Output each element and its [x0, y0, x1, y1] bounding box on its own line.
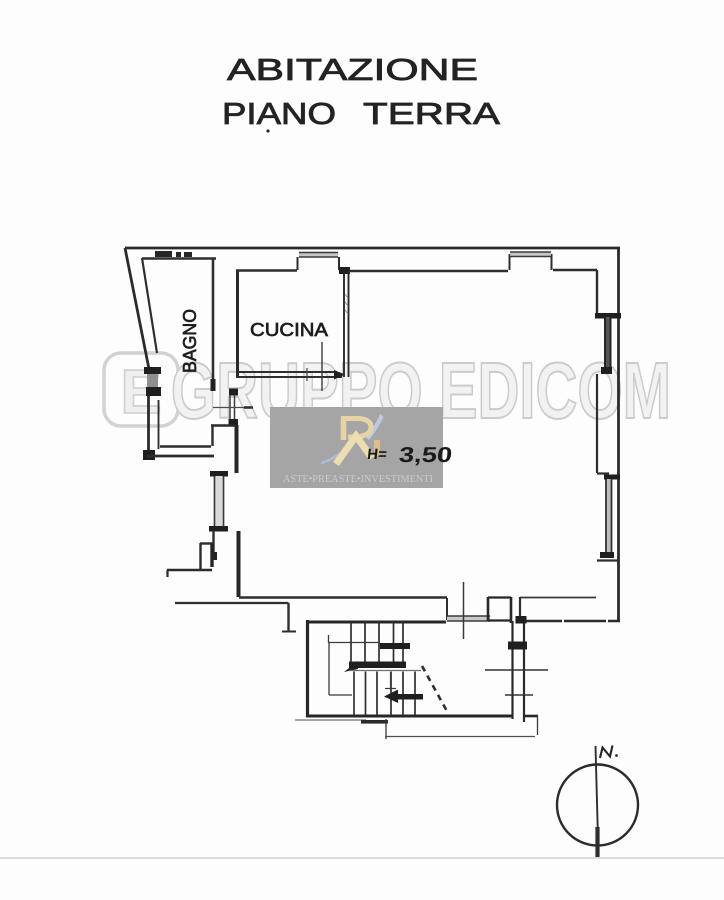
- svg-text:ABITAZIONE: ABITAZIONE: [227, 52, 478, 87]
- svg-text:ASTE•PREASTE•INVESTIMENTI: ASTE•PREASTE•INVESTIMENTI: [283, 473, 433, 485]
- svg-text:TERRA: TERRA: [363, 96, 500, 131]
- svg-text:3,50: 3,50: [398, 442, 454, 467]
- svg-text:CUCINA: CUCINA: [250, 319, 329, 340]
- svg-text:PIANO: PIANO: [222, 96, 336, 131]
- svg-text:H=: H=: [366, 446, 388, 463]
- svg-text:BAGNO: BAGNO: [179, 309, 200, 373]
